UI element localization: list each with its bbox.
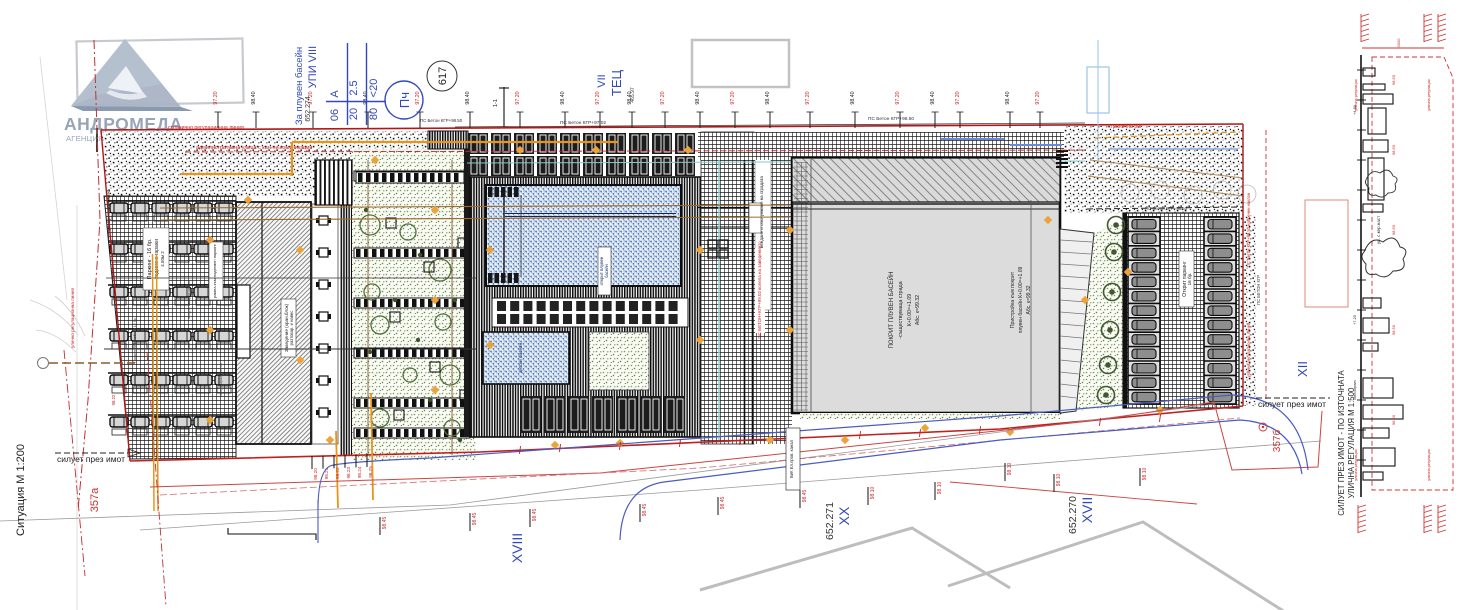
svg-text:За плувен басейн: За плувен басейн	[294, 47, 305, 125]
svg-text:97.20: 97.20	[895, 91, 901, 104]
svg-text:улична регулация: улична регулация	[1427, 449, 1431, 481]
svg-text:97.20: 97.20	[415, 91, 421, 104]
svg-text:ПС Бетон КГР+98.50: ПС Бетон КГР+98.50	[868, 116, 914, 122]
svg-text:98.40: 98.40	[695, 91, 701, 104]
svg-text:рампа към подземен паркинг: рампа към подземен паркинг	[212, 243, 217, 298]
svg-text:97.20: 97.20	[730, 91, 736, 104]
svg-text:XVII: XVII	[1079, 497, 1095, 523]
svg-text:20: 20	[348, 108, 360, 120]
svg-text:VII: VII	[596, 74, 608, 87]
svg-text:98.40: 98.40	[560, 91, 566, 104]
svg-text:98.40: 98.40	[850, 91, 856, 104]
svg-text:странично регулационна линия: странично регулационна линия	[168, 125, 244, 131]
svg-text:3000: 3000	[1396, 38, 1401, 48]
svg-text:XVIII: XVIII	[509, 533, 525, 563]
svg-text:16 бр.: 16 бр.	[1187, 273, 1192, 286]
svg-text:652.271: 652.271	[824, 502, 836, 540]
svg-text:2.5: 2.5	[348, 80, 360, 95]
svg-text:98.40: 98.40	[1005, 91, 1011, 104]
svg-text:98.45: 98.45	[532, 509, 538, 522]
svg-text:98.25: 98.25	[368, 466, 373, 478]
svg-text:улична регулация: улична регулация	[1354, 449, 1358, 481]
svg-text:98.40: 98.40	[465, 91, 471, 104]
svg-text:улична регулация: улична регулация	[1427, 79, 1431, 111]
svg-text:98.40: 98.40	[251, 91, 257, 104]
svg-text:Пч: Пч	[397, 92, 412, 108]
svg-text:ВиК Ел.пров. канал: ВиК Ел.пров. канал	[789, 439, 794, 478]
svg-text:98.20: 98.20	[313, 468, 318, 480]
svg-text:ул. Брезовска алея: ул. Брезовска алея	[106, 189, 111, 230]
svg-text:ул. с кер.наст: ул. с кер.наст	[1376, 216, 1381, 244]
svg-text:98.23: 98.23	[346, 467, 351, 479]
svg-text:Ситуация М 1:200: Ситуация М 1:200	[15, 444, 27, 536]
svg-text:силует през имот: силует през имот	[1258, 399, 1326, 409]
svg-text:97.20: 97.20	[595, 91, 601, 104]
svg-text:Паркинг автомобили 12 бр.: Паркинг автомобили 12 бр.	[133, 317, 137, 363]
svg-text:К+0.00=+1.09: К+0.00=+1.09	[907, 294, 913, 326]
svg-text:Абс. к=99.32: Абс. к=99.32	[915, 295, 921, 325]
svg-text:97.20: 97.20	[1035, 91, 1041, 104]
svg-text:98.50: 98.50	[1391, 144, 1396, 155]
svg-text:80: 80	[368, 108, 380, 120]
svg-text:98.10: 98.10	[1007, 463, 1013, 476]
svg-text:ПС БЕТОН КГР: ПС БЕТОН КГР	[1256, 275, 1261, 305]
svg-text:357а: 357а	[89, 487, 101, 512]
svg-text:ПС Бетон КГР+98.50: ПС Бетон КГР+98.50	[420, 118, 463, 123]
svg-text:СИЛУЕТ ПРЕЗ ИМОТ - ПО ИЗТОЧНАТ: СИЛУЕТ ПРЕЗ ИМОТ - ПО ИЗТОЧНАТА	[1337, 370, 1346, 516]
svg-text:617: 617	[437, 67, 449, 85]
svg-text:98.45: 98.45	[382, 517, 388, 530]
svg-text:97.20: 97.20	[515, 91, 521, 104]
svg-text:98.40: 98.40	[765, 91, 771, 104]
svg-text:входно изходна рампа: входно изходна рампа	[187, 281, 191, 319]
svg-text:98.50: 98.50	[1391, 414, 1396, 425]
svg-text:98.22: 98.22	[335, 467, 340, 479]
svg-text:+4.60: +4.60	[1353, 105, 1357, 115]
svg-text:ПОКРИТ ПЛУВЕН БАСЕЙН: ПОКРИТ ПЛУВЕН БАСЕЙН	[887, 272, 895, 349]
svg-text:98.45: 98.45	[642, 504, 648, 517]
svg-text:97.20: 97.20	[955, 91, 961, 104]
svg-text:652.274: 652.274	[305, 96, 312, 121]
svg-text:УПИ VIII: УПИ VIII	[307, 46, 319, 88]
svg-text:+7.20: +7.20	[1353, 315, 1357, 325]
svg-text:ПС Бетон КГР+97.02: ПС Бетон КГР+97.02	[560, 120, 606, 126]
svg-text:98.50: 98.50	[1391, 324, 1396, 335]
svg-text:98.45: 98.45	[472, 513, 478, 526]
svg-text:4.50м 2: 4.50м 2	[160, 251, 165, 267]
svg-text:97.20: 97.20	[805, 91, 811, 104]
svg-text:административна улица с кан-ни: административна улица с кан-ни комуникац…	[196, 145, 312, 151]
svg-text:улична регулационна линия: улична регулационна линия	[1246, 323, 1251, 378]
svg-text:1-1: 1-1	[493, 99, 499, 107]
svg-text:98.10: 98.10	[1056, 474, 1062, 487]
svg-text:-съществуваща сграда: -съществуваща сграда	[898, 281, 904, 338]
svg-text:652.270: 652.270	[1067, 496, 1079, 534]
svg-text:357б: 357б	[1271, 430, 1283, 453]
svg-text:ПС Бетон КГР+98.50 напречен на: ПС Бетон КГР+98.50 напречен наклон	[1246, 192, 1251, 267]
svg-text:06: 06	[329, 109, 341, 121]
svg-text:98.45: 98.45	[802, 490, 808, 503]
svg-text:странично рег: странично рег	[1108, 124, 1142, 130]
svg-text:плувен басейн К+0.00=+1.09: плувен басейн К+0.00=+1.09	[1017, 267, 1024, 334]
svg-text:кота корниз: кота корниз	[1353, 380, 1357, 400]
svg-text:контролиран достъп: контролиран достъп	[219, 363, 223, 397]
svg-text:98.10: 98.10	[937, 482, 943, 495]
svg-text:разтовар. и навес: разтовар. и навес	[289, 311, 294, 346]
svg-text:98.40: 98.40	[930, 91, 936, 104]
svg-text:ТЕЦ: ТЕЦ	[609, 70, 624, 97]
svg-text:98.10: 98.10	[870, 487, 876, 500]
svg-text:ПС БЕТОН+КГР+99.02 колела на з: ПС БЕТОН+КГР+99.02 колела на заведението	[757, 241, 762, 339]
svg-text:XX: XX	[836, 506, 852, 525]
svg-text:98.45: 98.45	[720, 497, 726, 510]
svg-text:465.97: 465.97	[630, 87, 636, 103]
svg-text:басейн: басейн	[604, 263, 609, 277]
svg-text:Абс. к=99.32: Абс. к=99.32	[1026, 285, 1032, 314]
svg-text:98.50: 98.50	[1391, 74, 1396, 85]
svg-text:улично регулационна линия: улично регулационна линия	[70, 288, 75, 348]
svg-text:98.22: 98.22	[111, 394, 116, 406]
svg-text:силует през имот: силует през имот	[57, 454, 125, 464]
svg-text:А: А	[329, 90, 341, 98]
svg-text:98.24: 98.24	[357, 466, 362, 478]
svg-text:<20: <20	[368, 79, 380, 98]
svg-text:97.20: 97.20	[213, 91, 219, 104]
svg-text:Пристройка към покрит: Пристройка към покрит	[1009, 271, 1016, 328]
svg-text:детски басейн: детски басейн	[517, 342, 523, 373]
svg-text:98.50: 98.50	[1391, 224, 1396, 235]
svg-text:97.20: 97.20	[660, 91, 666, 104]
svg-text:XII: XII	[1295, 361, 1310, 377]
svg-text:98.10: 98.10	[1142, 468, 1148, 481]
